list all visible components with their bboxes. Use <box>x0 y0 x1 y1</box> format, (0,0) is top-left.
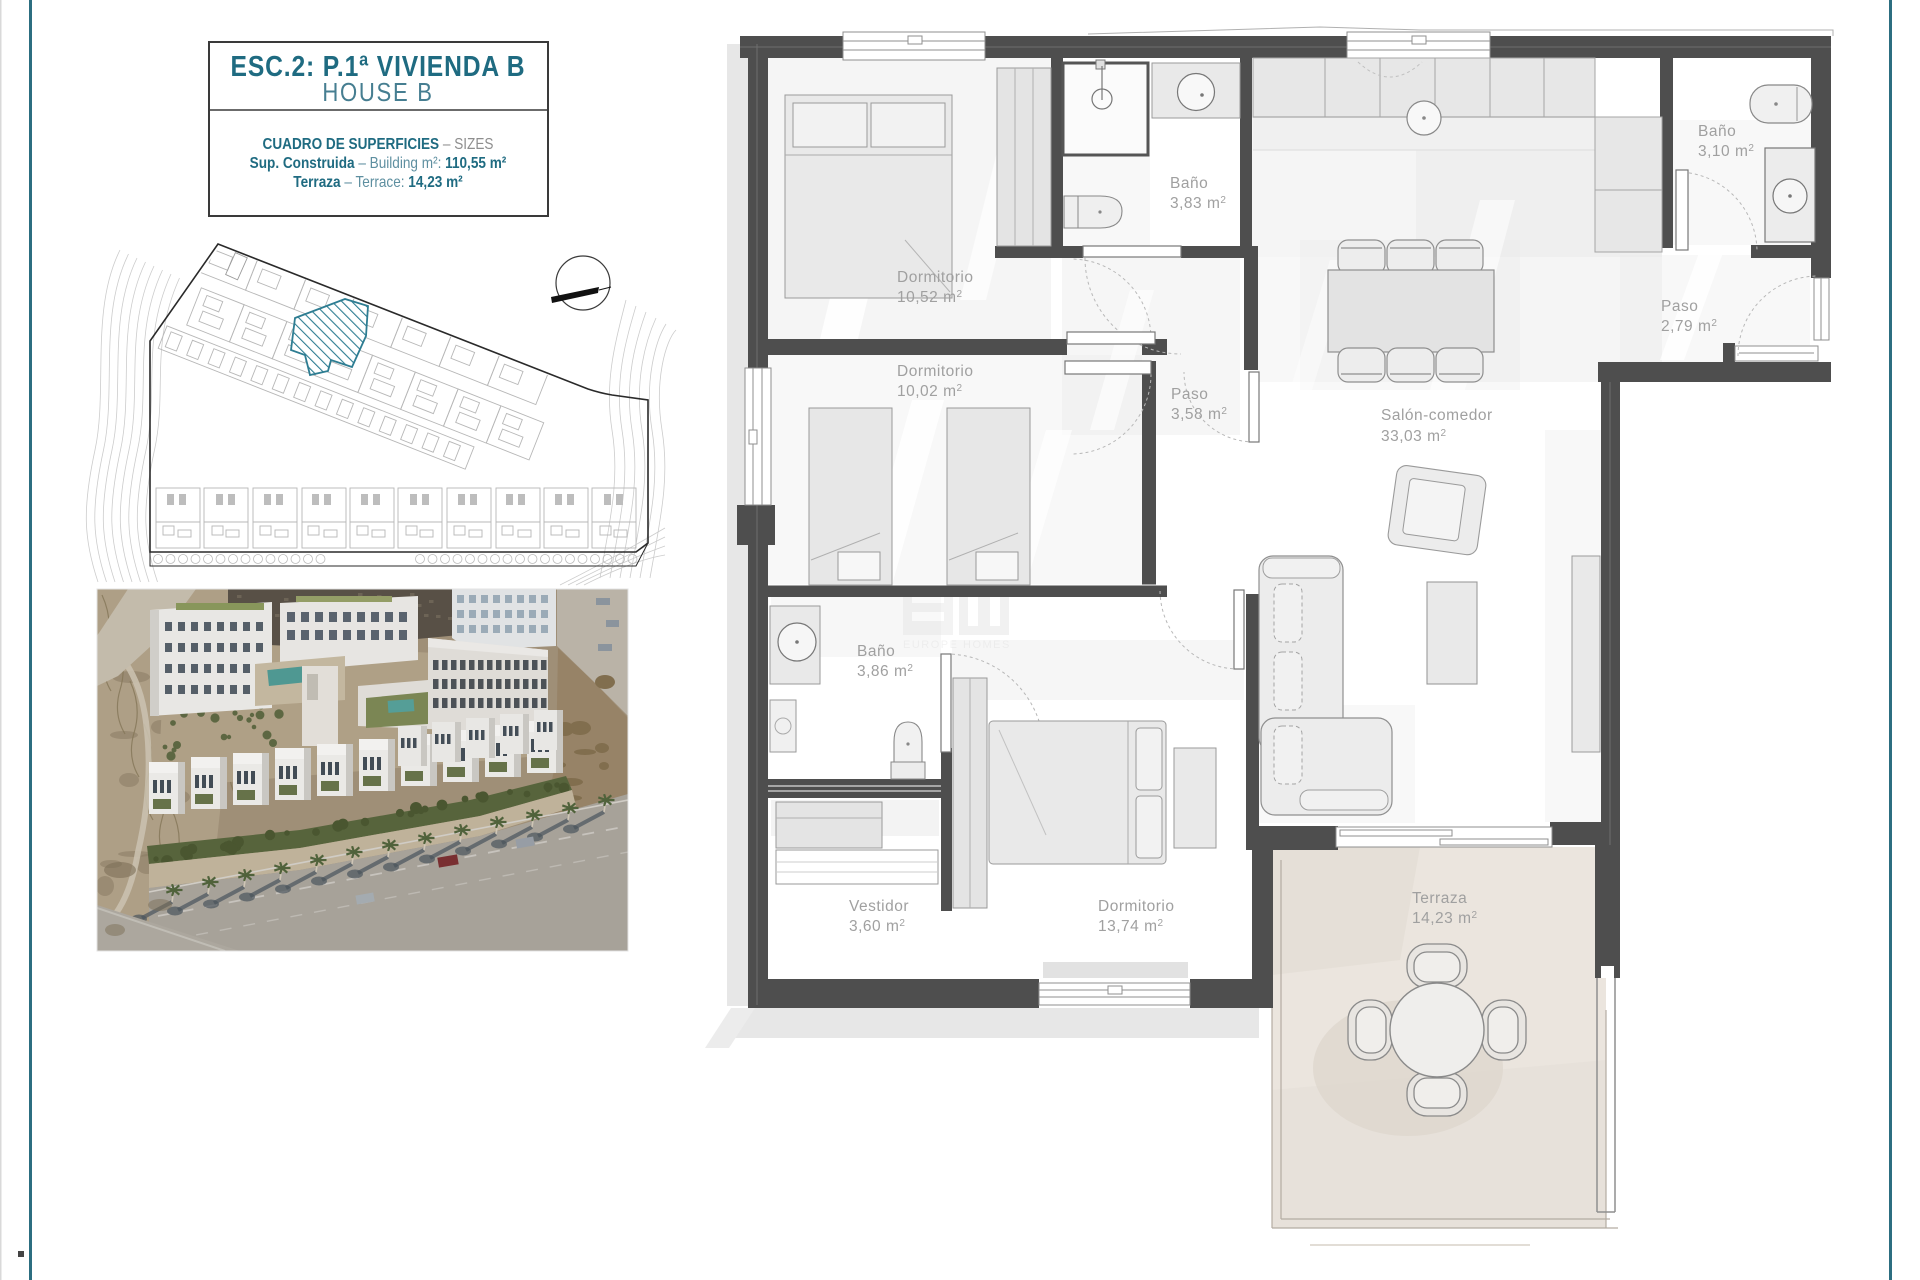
svg-text:Paso: Paso <box>1171 386 1208 403</box>
svg-text:3,83 m2: 3,83 m2 <box>1170 195 1226 212</box>
svg-text:EUROPE HOMES: EUROPE HOMES <box>903 639 1011 651</box>
svg-text:Terraza: Terraza <box>1412 890 1467 907</box>
svg-text:CUADRO DE SUPERFICIES – SIZES: CUADRO DE SUPERFICIES – SIZES <box>263 136 494 153</box>
svg-text:Baño: Baño <box>1170 175 1208 192</box>
svg-text:Baño: Baño <box>857 643 895 660</box>
svg-text:10,52 m2: 10,52 m2 <box>897 289 963 306</box>
svg-text:Dormitorio: Dormitorio <box>1098 898 1174 915</box>
svg-text:3,58 m2: 3,58 m2 <box>1171 406 1227 423</box>
svg-text:33,03 m2: 33,03 m2 <box>1381 428 1447 445</box>
svg-text:Paso: Paso <box>1661 298 1698 315</box>
svg-text:3,10 m2: 3,10 m2 <box>1698 143 1754 160</box>
svg-text:Dormitorio: Dormitorio <box>897 269 973 286</box>
svg-text:Vestidor: Vestidor <box>849 898 909 915</box>
svg-text:10,02 m2: 10,02 m2 <box>897 383 963 400</box>
svg-text:Terraza – Terrace: 14,23 m²: Terraza – Terrace: 14,23 m² <box>293 174 462 191</box>
svg-text:Salón-comedor: Salón-comedor <box>1381 407 1493 424</box>
svg-text:HOUSE B: HOUSE B <box>322 78 433 107</box>
svg-text:2,79 m2: 2,79 m2 <box>1661 318 1717 335</box>
svg-text:14,23 m2: 14,23 m2 <box>1412 910 1478 927</box>
svg-text:3,60 m2: 3,60 m2 <box>849 918 905 935</box>
svg-text:Baño: Baño <box>1698 123 1736 140</box>
svg-text:Sup. Construida – Building m²:: Sup. Construida – Building m²: 110,55 m² <box>250 155 507 172</box>
svg-text:Dormitorio: Dormitorio <box>897 363 973 380</box>
svg-text:13,74 m2: 13,74 m2 <box>1098 918 1164 935</box>
svg-text:3,86 m2: 3,86 m2 <box>857 663 913 680</box>
